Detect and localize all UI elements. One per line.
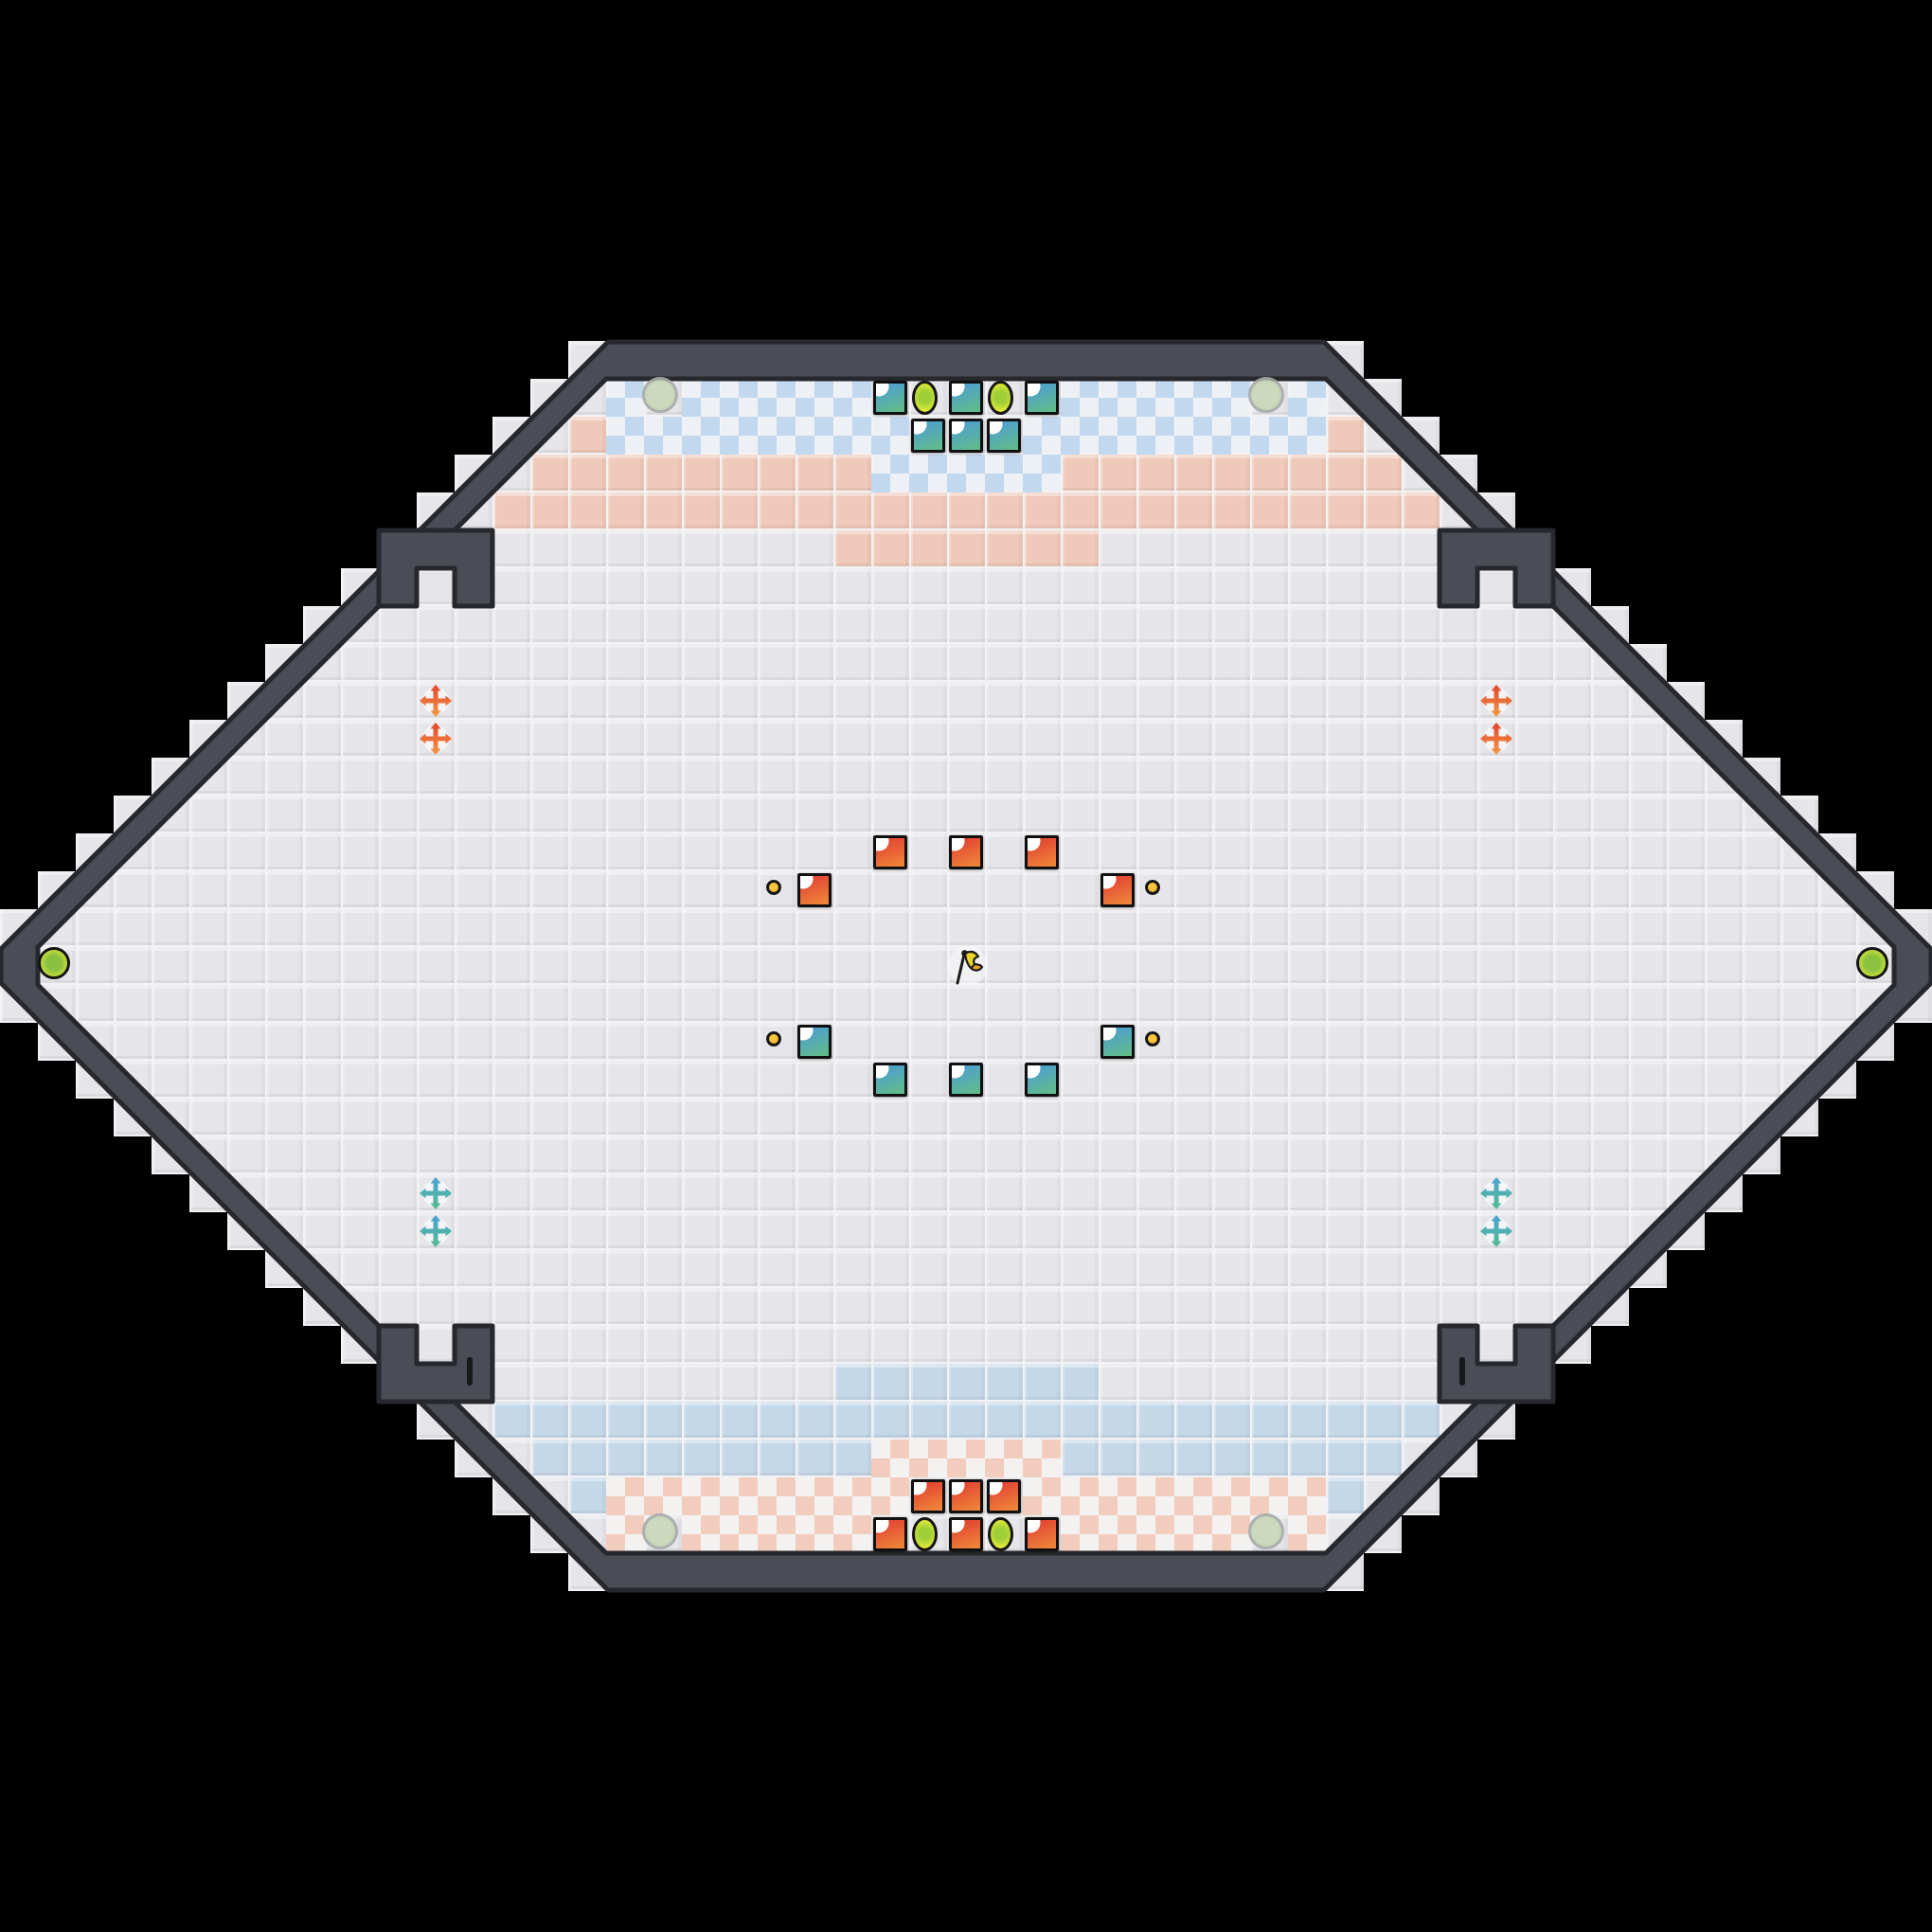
yellow-powerup[interactable] (988, 381, 1013, 415)
yellow-powerup[interactable] (988, 1517, 1013, 1551)
blue-team-tile[interactable] (987, 419, 1021, 453)
boost-dot[interactable] (1145, 880, 1160, 895)
inactive-powerup[interactable] (642, 1513, 678, 1549)
blue-team-tile[interactable] (797, 1025, 832, 1059)
red-team-tile[interactable] (873, 835, 907, 869)
red-team-tile[interactable] (1100, 873, 1135, 907)
blue-team-tile[interactable] (873, 1063, 907, 1097)
inactive-powerup[interactable] (1248, 377, 1284, 413)
blue-team-tile[interactable] (873, 381, 907, 415)
game-objects-layer (0, 0, 1932, 1932)
red-team-tile[interactable] (949, 1517, 983, 1551)
inactive-powerup[interactable] (1248, 1513, 1284, 1549)
yellow-powerup[interactable] (912, 1517, 938, 1551)
blue-team-tile[interactable] (1100, 1025, 1135, 1059)
blue-team-tile[interactable] (911, 419, 945, 453)
orange-team-cross-boost[interactable] (417, 682, 455, 720)
inactive-powerup[interactable] (642, 377, 678, 413)
orange-team-cross-boost[interactable] (1477, 720, 1515, 758)
blue-team-tile[interactable] (1025, 381, 1059, 415)
yellow-powerup[interactable] (912, 381, 938, 415)
red-team-tile[interactable] (949, 1479, 983, 1513)
boost-dot[interactable] (1145, 1031, 1160, 1046)
neutral-flag[interactable] (945, 943, 991, 989)
red-team-tile[interactable] (949, 835, 983, 869)
red-team-tile[interactable] (797, 873, 832, 907)
teal-team-cross-boost[interactable] (417, 1174, 455, 1212)
red-team-tile[interactable] (1025, 835, 1059, 869)
red-team-tile[interactable] (1025, 1517, 1059, 1551)
blue-team-tile[interactable] (949, 419, 983, 453)
boost-dot[interactable] (766, 1031, 781, 1046)
corner-powerup[interactable] (38, 947, 70, 979)
teal-team-cross-boost[interactable] (417, 1212, 455, 1250)
teal-team-cross-boost[interactable] (1477, 1212, 1515, 1250)
blue-team-tile[interactable] (949, 381, 983, 415)
corner-powerup[interactable] (1856, 947, 1888, 979)
teal-team-cross-boost[interactable] (1477, 1174, 1515, 1212)
blue-team-tile[interactable] (949, 1063, 983, 1097)
red-team-tile[interactable] (873, 1517, 907, 1551)
boost-dot[interactable] (766, 880, 781, 895)
red-team-tile[interactable] (911, 1479, 945, 1513)
red-team-tile[interactable] (987, 1479, 1021, 1513)
orange-team-cross-boost[interactable] (417, 720, 455, 758)
orange-team-cross-boost[interactable] (1477, 682, 1515, 720)
blue-team-tile[interactable] (1025, 1063, 1059, 1097)
game-map-arena (0, 0, 1932, 1932)
